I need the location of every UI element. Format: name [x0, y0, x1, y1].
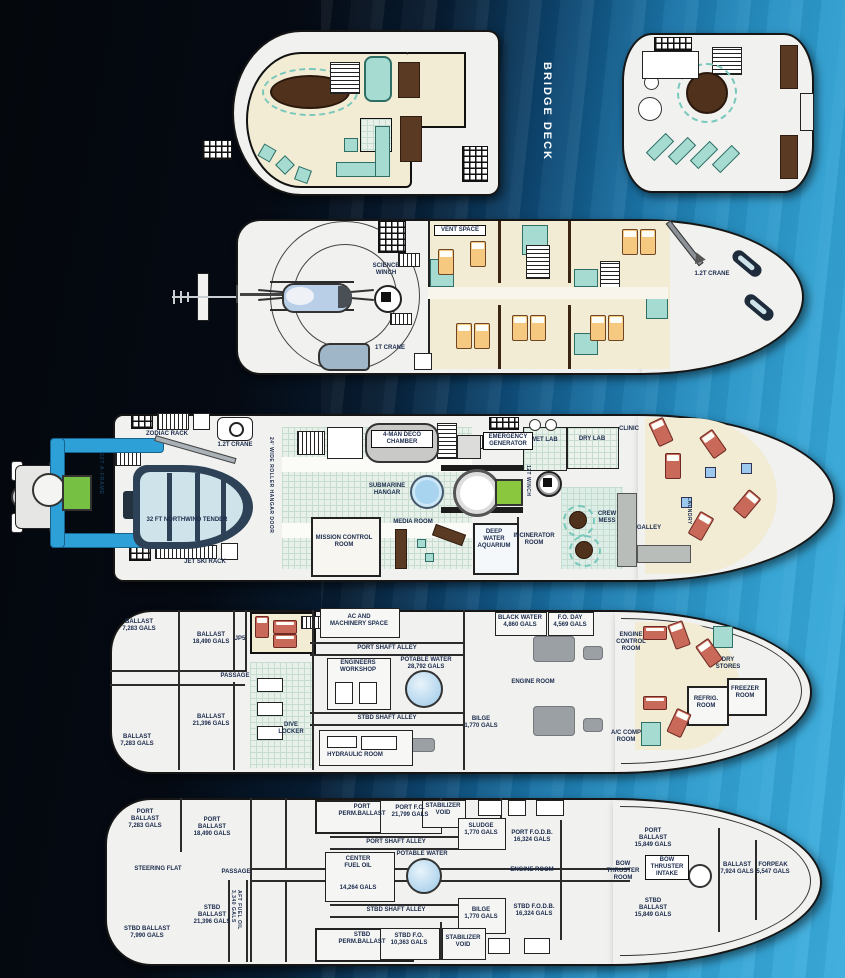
- mess-table-icon: [575, 541, 593, 559]
- forpeak-label: FORPEAK 5,547 GALS: [756, 862, 790, 876]
- ladder-icon: [115, 451, 141, 466]
- launch-skiff-icon: [62, 475, 92, 511]
- bed-icon: [273, 620, 297, 634]
- bed-icon: [273, 634, 297, 648]
- engine-room-label: ENGINE ROOM: [503, 679, 563, 686]
- fo-day-label: F.O. DAY 4,569 GALS: [549, 615, 591, 629]
- helm-console: [642, 51, 699, 79]
- alley-wall: [310, 654, 465, 656]
- potable-water-tank-icon: [406, 858, 442, 894]
- deck-grate-icon: [489, 417, 519, 430]
- winch-12t-drum: [543, 478, 552, 487]
- center-fuel-oil-gals-label: 14,264 GALS: [328, 885, 388, 892]
- bed-icon: [512, 315, 528, 341]
- hatch-box: [508, 800, 526, 816]
- deck-box: [193, 413, 210, 430]
- passage-wall: [110, 684, 245, 686]
- bed-icon: [665, 453, 681, 479]
- dry-stores-label: DRY STORES: [711, 657, 745, 671]
- zodiac-rack-icon: [157, 413, 189, 430]
- dry-lab-floor: [567, 427, 619, 469]
- crew-mess-label: CREW MESS: [589, 511, 625, 525]
- bridge-deck-plan: [622, 33, 814, 193]
- bed-icon: [470, 241, 486, 267]
- bed-icon: [474, 323, 490, 349]
- coffee-table-icon: [344, 138, 358, 152]
- sink-icon: [545, 419, 557, 431]
- sink-icon: [741, 463, 752, 474]
- hatch-box: [536, 800, 564, 816]
- bathroom-icon: [574, 269, 598, 287]
- hydraulic-unit: [361, 736, 397, 750]
- crane-12t-label: 1.2T CRANE: [211, 442, 259, 449]
- a-frame-label: 22T A-FRAME: [98, 453, 104, 539]
- ac-comp-room-label: A/C COMP ROOM: [605, 730, 647, 744]
- chair-icon: [425, 553, 434, 562]
- alley-wall: [310, 642, 465, 644]
- heli-tail-rotor: [236, 285, 238, 303]
- bow-thruster-tunnel-icon: [688, 864, 712, 888]
- cabin-wall: [568, 221, 571, 283]
- crane-pivot: [229, 422, 244, 437]
- bow-thruster-room-label: BOW THRUSTER ROOM: [604, 861, 642, 882]
- bed-icon: [438, 249, 454, 275]
- passage-label: PASSAGE: [217, 673, 253, 680]
- vent-icon: [301, 616, 321, 629]
- port-ballast-15849-label: PORT BALLAST 15,849 GALS: [630, 828, 676, 849]
- cabin-corridor: [428, 287, 668, 299]
- sun-pad-icon: [400, 116, 422, 162]
- engine-icon: [533, 706, 575, 736]
- potable-water-label: POTABLE WATER: [392, 851, 452, 858]
- submarine-icon: [453, 469, 501, 517]
- laundry-label: LAUNDRY: [686, 497, 692, 533]
- tender-thwart: [167, 473, 172, 541]
- port-shaft-alley-label: PORT SHAFT ALLEY: [337, 645, 437, 652]
- alley-wall: [330, 904, 460, 906]
- workbench: [359, 682, 377, 704]
- stern-platform: [800, 93, 814, 131]
- sub-sphere-icon: [410, 475, 444, 509]
- sun-pad-icon: [398, 62, 420, 98]
- stbd-ballast-21396-label: STBD BALLAST 21,396 GALS: [192, 905, 232, 926]
- bridge-deck-caption: BRIDGE DECK: [541, 62, 553, 192]
- media-room-label: MEDIA ROOM: [390, 519, 436, 526]
- vent-space-label: VENT SPACE: [434, 225, 486, 236]
- spa-tub-icon: [364, 56, 392, 102]
- hatch-box: [478, 800, 502, 816]
- hydraulic-room-label: HYDRAULIC ROOM: [321, 752, 389, 759]
- genset-icon: [583, 718, 603, 732]
- stabilizer-void-top-label: STABILIZER VOID: [423, 803, 463, 817]
- alley-wall: [310, 712, 465, 714]
- deck-grate-icon: [378, 221, 406, 253]
- zodiac-cradle-icon: [131, 415, 153, 429]
- dive-crate: [257, 702, 283, 716]
- hatch-box: [524, 938, 550, 954]
- engine-room-label: ENGINE ROOM: [504, 867, 560, 874]
- mast-tick: [180, 291, 182, 303]
- science-winch-label: SCIENCE WINCH: [366, 263, 406, 277]
- helideck-plan: SCIENCE WINCH 1T CRANE VENT SPACE: [170, 205, 815, 387]
- workbench: [335, 682, 353, 704]
- engineers-workshop-label: ENGINEERS WORKSHOP: [329, 660, 387, 674]
- stbd-shaft-alley-label: STBD SHAFT ALLEY: [337, 715, 437, 722]
- stbd-fodb-label: STBD F.O.D.B. 16,324 GALS: [506, 904, 562, 918]
- engine-control-label: ENGINE CONTROL ROOM: [609, 632, 653, 653]
- jet-ski-cradle-icon: [129, 547, 151, 561]
- mast-tick: [173, 290, 175, 304]
- ballast-7283-top-label: BALLAST 7,283 GALS: [119, 619, 159, 633]
- mess-table-icon: [569, 511, 587, 529]
- deck-box: [221, 543, 238, 560]
- potable-water-label: POTABLE WATER 28,792 GALS: [399, 657, 453, 671]
- tank-wall: [178, 610, 180, 770]
- mission-control-label: MISSION CONTROL ROOM: [311, 535, 377, 549]
- jet-ski-rack-label: JET SKI RACK: [175, 559, 235, 566]
- center-fuel-oil-label: CENTER FUEL OIL: [328, 856, 388, 870]
- media-desk-icon: [395, 529, 407, 569]
- port-fodb-label: PORT F.O.D.B. 16,324 GALS: [504, 830, 560, 844]
- refrig-room-label: REFRIG. ROOM: [688, 696, 724, 710]
- tender-label: 32 FT NORTHWIND TENDER: [141, 517, 233, 524]
- crane-12t-label: 1.2T CRANE: [688, 271, 736, 278]
- rescue-boat-icon: [318, 343, 370, 371]
- bed-icon: [640, 229, 656, 255]
- stbd-ballast-15849-label: STBD BALLAST 15,849 GALS: [630, 898, 676, 919]
- bilge-label: BILGE 1,770 GALS: [461, 716, 501, 730]
- bed-icon: [608, 315, 624, 341]
- bow-tank-wall: [755, 840, 757, 920]
- a-frame-top-arm: [50, 438, 164, 453]
- crane-base: [414, 353, 432, 370]
- galley-label: GALLEY: [629, 525, 669, 532]
- tank-wall: [463, 610, 465, 770]
- tank-wall: [560, 820, 562, 940]
- science-winch-drum: [381, 292, 391, 302]
- sky-lounge-deck-plan: [232, 30, 500, 196]
- stbd-shaft-alley-label: STBD SHAFT ALLEY: [346, 907, 446, 914]
- helicopter-cockpit: [286, 287, 314, 305]
- sludge-label: SLUDGE 1,770 GALS: [460, 823, 502, 837]
- hatch-box: [488, 938, 510, 954]
- dive-locker-label: DIVE LOCKER: [273, 722, 309, 736]
- bed-icon: [530, 315, 546, 341]
- bow-tank-wall: [718, 828, 720, 932]
- passage-wall: [110, 670, 245, 672]
- bilge-label: BILGE 1,770 GALS: [460, 907, 502, 921]
- submarine-hangar-label: SUBMARINE HANGAR: [363, 483, 411, 497]
- bed-icon: [255, 616, 269, 638]
- chair-icon: [417, 539, 426, 548]
- equipment-box: [327, 427, 363, 459]
- passage-label: PASSAGE: [216, 869, 256, 876]
- crane-1t-label: 1T CRANE: [368, 345, 412, 352]
- stairs-icon: [600, 261, 620, 289]
- dry-lab-label: DRY LAB: [569, 436, 615, 443]
- tender-thwart: [221, 477, 226, 537]
- incinerator-room-label: INCINERATOR ROOM: [511, 533, 557, 547]
- tank-wall: [285, 798, 287, 868]
- clinic-label: CLINIC: [611, 426, 647, 433]
- emergency-generator-label: EMERGENCY GENERATOR: [483, 432, 533, 450]
- ballast-18490-label: BALLAST 18,490 GALS: [191, 632, 231, 646]
- black-water-label: BLACK WATER 4,860 GALS: [497, 615, 543, 629]
- jp5-label: JP5: [233, 636, 247, 643]
- sub-tail-icon: [495, 479, 523, 506]
- bed-icon: [456, 323, 472, 349]
- cabin-wall: [498, 305, 501, 369]
- port-shaft-alley-label: PORT SHAFT ALLEY: [346, 839, 446, 846]
- sun-pad-icon: [780, 45, 798, 89]
- ballast-21396-label: BALLAST 21,396 GALS: [191, 714, 231, 728]
- stern-hatch-icon: [202, 140, 232, 160]
- hydraulic-unit: [327, 736, 357, 748]
- main-deck-plan: 22T A-FRAME ZODIAC RACK 1.2T CRANE 32 FT…: [5, 405, 840, 587]
- tender-interior: [140, 472, 243, 542]
- tank-wall: [180, 798, 182, 852]
- ballast-7283-bottom-label: BALLAST 7,283 GALS: [117, 734, 157, 748]
- steering-flat-label: STEERING FLAT: [128, 866, 188, 873]
- bed-icon: [643, 696, 667, 710]
- potable-water-tank-icon: [405, 670, 443, 708]
- deck-grate-icon: [462, 146, 488, 182]
- alley-wall: [310, 724, 465, 726]
- port-ballast-7283-label: PORT BALLAST 7,283 GALS: [122, 809, 168, 830]
- bed-icon: [622, 229, 638, 255]
- tank-wall: [285, 880, 287, 962]
- winch-12t-label: 12T WINCH: [525, 465, 531, 503]
- hangar-door-label: 24' WIDE ROLLER HANGAR DOOR: [268, 437, 274, 533]
- tank-wall: [246, 880, 248, 962]
- tank-deck-plan: BALLAST 7,283 GALS BALLAST 18,490 GALS J…: [105, 600, 820, 782]
- winch-drum-icon: [32, 473, 66, 507]
- alley-wall: [330, 848, 460, 850]
- mast-tick: [187, 292, 189, 302]
- stbd-ballast-7990-label: STBD BALLAST 7,990 GALS: [124, 926, 170, 940]
- engine-icon: [533, 636, 575, 662]
- cabin-wall: [568, 305, 571, 369]
- ballast-7924-label: BALLAST 7,924 GALS: [718, 862, 756, 876]
- vent-grate-icon: [654, 37, 692, 51]
- winch-icon: [297, 431, 325, 455]
- alley-wall: [330, 916, 460, 918]
- alley-wall: [330, 836, 460, 838]
- stairs-icon: [330, 62, 360, 94]
- side-table-icon: [638, 97, 662, 121]
- sofa-icon: [375, 126, 390, 177]
- sink-icon: [529, 419, 541, 431]
- ac-machinery-label: AC AND MACHINERY SPACE: [323, 614, 395, 628]
- deck-plan-poster: BRIDGE DECK SC: [0, 0, 845, 978]
- sink-icon: [705, 467, 716, 478]
- deco-chamber-label: 4-MAN DECO CHAMBER: [371, 430, 433, 448]
- zodiac-rack-label: ZODIAC RACK: [139, 431, 195, 438]
- galley-counter-icon: [637, 545, 691, 563]
- tank-wall: [312, 610, 314, 770]
- port-ballast-18490-label: PORT BALLAST 18,490 GALS: [192, 817, 232, 838]
- ladder-icon: [390, 313, 412, 325]
- stabilizer-void-bottom-label: STABILIZER VOID: [443, 935, 483, 949]
- generator-box: [457, 435, 481, 459]
- cabin-wall: [498, 221, 501, 283]
- tender-thwart: [195, 473, 200, 541]
- bow-thruster-intake-label: BOW THRUSTER INTAKE: [645, 855, 689, 880]
- genset-icon: [583, 646, 603, 660]
- stairs-icon: [526, 245, 550, 279]
- aft-fuel-oil-label: AFT FUEL OIL 3,340 GALS: [230, 890, 242, 956]
- stbd-fo-label: STBD F.O. 10,363 GALS: [384, 933, 434, 947]
- stairs-icon: [437, 423, 457, 459]
- deep-water-aquarium-label: DEEP WATER AQUARIUM: [474, 529, 514, 550]
- bed-icon: [590, 315, 606, 341]
- bathroom-icon: [713, 626, 733, 648]
- sun-pad-icon: [780, 135, 798, 179]
- lower-tank-deck-plan: PORT BALLAST 7,283 GALS PORT BALLAST 18,…: [100, 790, 822, 975]
- dive-crate: [257, 678, 283, 692]
- tank-wall: [233, 682, 235, 770]
- freezer-room-label: FREEZER ROOM: [728, 686, 762, 700]
